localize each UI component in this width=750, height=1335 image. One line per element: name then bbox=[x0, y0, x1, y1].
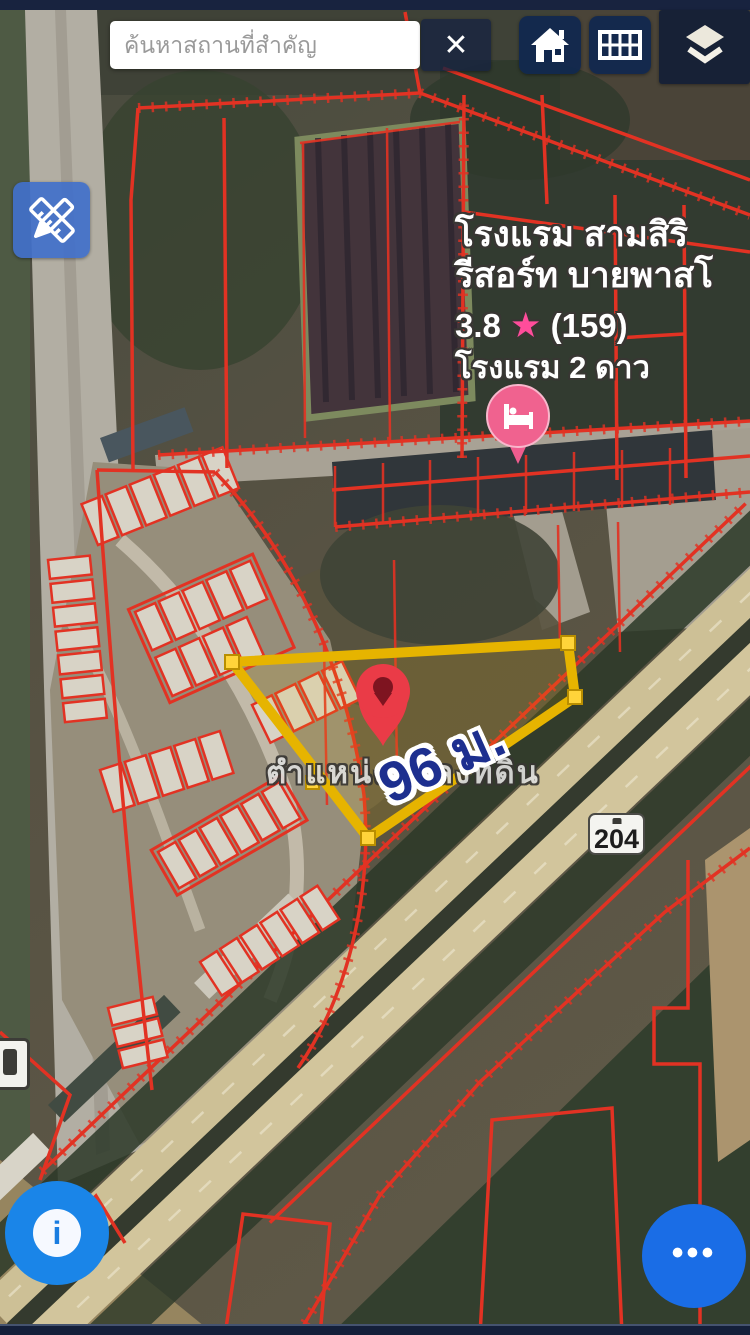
search-bar[interactable] bbox=[110, 21, 420, 69]
home-button[interactable] bbox=[519, 16, 581, 74]
hotel-category: โรงแรม 2 ดาว bbox=[455, 350, 713, 387]
status-bar bbox=[0, 0, 750, 10]
app-screen: โรงแรม สามสิริ รีสอร์ท บายพาสโ 3.8 ★ (15… bbox=[0, 0, 750, 1335]
map-canvas[interactable] bbox=[0, 0, 750, 1335]
grid-button[interactable] bbox=[589, 16, 651, 74]
search-input[interactable] bbox=[110, 21, 420, 69]
info-icon: i bbox=[33, 1209, 81, 1257]
hotel-rating-row: 3.8 ★ (159) bbox=[455, 305, 713, 346]
more-button[interactable]: ••• bbox=[642, 1204, 746, 1308]
pencil-ruler-icon bbox=[24, 192, 80, 248]
layers-button[interactable] bbox=[659, 10, 750, 84]
close-icon: ✕ bbox=[443, 28, 468, 63]
edit-button[interactable] bbox=[13, 182, 90, 258]
partial-road-badge bbox=[0, 1038, 30, 1090]
ellipsis-icon: ••• bbox=[672, 1234, 717, 1273]
hotel-rating: 3.8 bbox=[455, 307, 501, 344]
layers-icon bbox=[677, 21, 733, 73]
star-icon: ★ bbox=[510, 306, 541, 345]
grid-icon bbox=[598, 28, 642, 62]
hotel-name-line2: รีสอร์ท บายพาสโ bbox=[455, 255, 713, 296]
hotel-name-line1: โรงแรม สามสิริ bbox=[455, 214, 713, 255]
hotel-label[interactable]: โรงแรม สามสิริ รีสอร์ท บายพาสโ 3.8 ★ (15… bbox=[455, 214, 713, 386]
road-badge: 204 bbox=[588, 813, 645, 855]
road-number: 204 bbox=[594, 825, 639, 853]
hotel-review-count: (159) bbox=[551, 307, 628, 344]
bottom-bar bbox=[0, 1324, 750, 1335]
home-icon bbox=[530, 25, 570, 65]
close-search-button[interactable]: ✕ bbox=[421, 19, 491, 71]
info-button[interactable]: i bbox=[5, 1181, 109, 1285]
badge-crest bbox=[612, 818, 621, 824]
